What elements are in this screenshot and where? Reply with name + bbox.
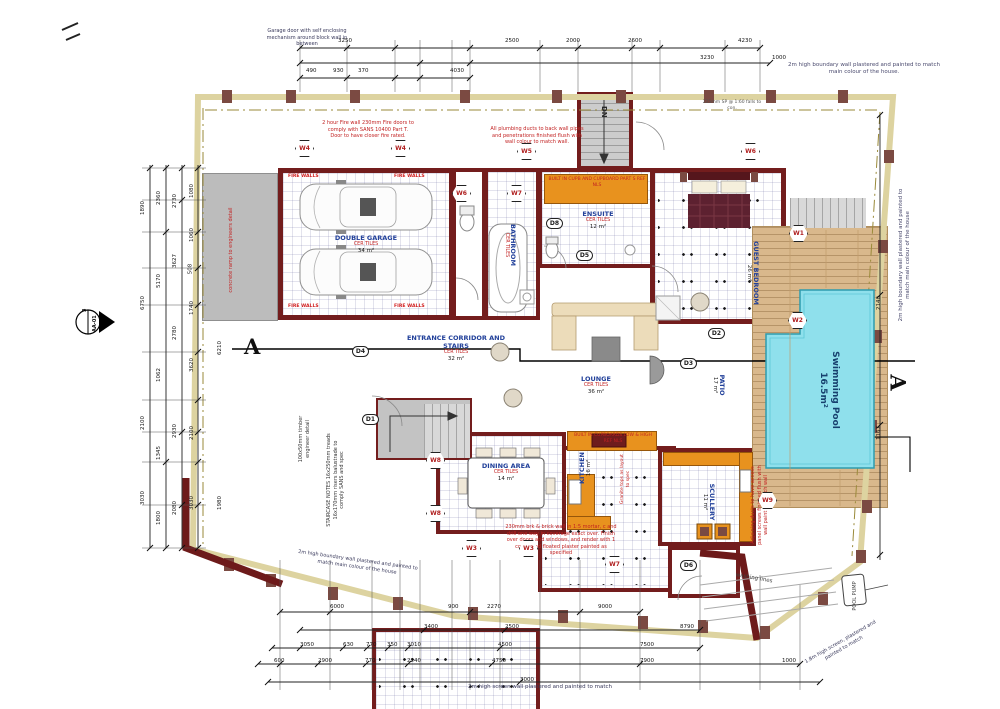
kitchen-counter-bottom (567, 516, 611, 530)
room-double-garage (278, 168, 454, 320)
ensuite-cupboard (544, 174, 648, 204)
stair-main-treads (424, 404, 470, 458)
kitchen-counter-top (567, 431, 657, 451)
room-wc (452, 168, 486, 320)
pool-deck (752, 226, 888, 508)
driveway-ramp (202, 173, 278, 321)
stairwell-top (577, 92, 633, 170)
scullery-counter-top (663, 452, 751, 466)
deck-steps (790, 198, 866, 228)
rooms-layer (0, 0, 1000, 709)
floor-plan-sheet: DOUBLE GARAGECER TILES34 m² BATHROOMCER … (0, 0, 1000, 709)
room-entrance-corridor (372, 628, 540, 709)
room-bathroom (484, 168, 540, 320)
kitchen-counter-left (567, 474, 595, 520)
scullery-counter-right (739, 452, 753, 542)
room-lobby (668, 546, 740, 598)
